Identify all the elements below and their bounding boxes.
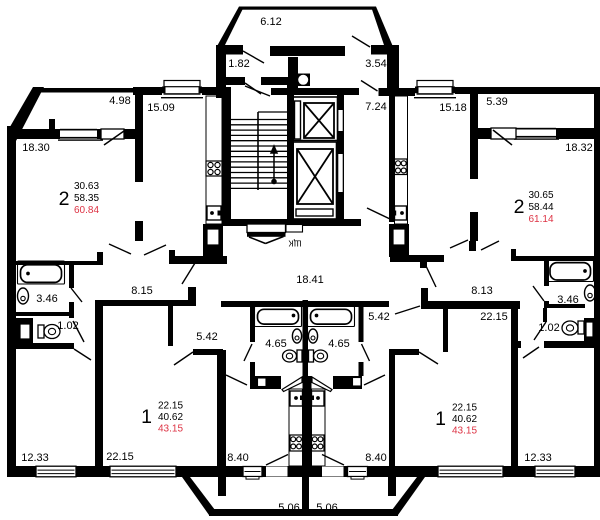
svg-text:8.40: 8.40 (365, 452, 386, 464)
svg-text:5.06: 5.06 (316, 502, 337, 514)
svg-text:3.54: 3.54 (365, 58, 386, 70)
svg-text:60.84: 60.84 (74, 205, 99, 216)
svg-text:40.62: 40.62 (158, 412, 183, 423)
svg-text:7.24: 7.24 (365, 101, 386, 113)
svg-text:43.15: 43.15 (452, 426, 477, 437)
svg-text:22.15: 22.15 (452, 403, 477, 414)
svg-text:1.02: 1.02 (57, 320, 78, 332)
svg-text:43.15: 43.15 (158, 424, 183, 435)
svg-text:22.15: 22.15 (158, 401, 183, 412)
svg-text:22.15: 22.15 (480, 311, 508, 323)
svg-text:61.14: 61.14 (529, 214, 554, 225)
svg-text:12.33: 12.33 (21, 452, 49, 464)
svg-text:5.39: 5.39 (486, 96, 507, 108)
svg-text:4.98: 4.98 (109, 95, 130, 107)
svg-text:1: 1 (435, 408, 446, 430)
svg-text:1: 1 (141, 406, 152, 428)
svg-text:2: 2 (59, 188, 70, 210)
svg-text:12.33: 12.33 (524, 452, 552, 464)
svg-text:30.65: 30.65 (529, 190, 554, 201)
svg-text:6.12: 6.12 (260, 16, 281, 28)
svg-text:5.42: 5.42 (368, 311, 389, 323)
svg-text:18.32: 18.32 (565, 142, 593, 154)
svg-text:1.82: 1.82 (228, 58, 249, 70)
svg-text:8.40: 8.40 (227, 452, 248, 464)
svg-text:3.46: 3.46 (36, 293, 57, 305)
svg-text:4.65: 4.65 (265, 338, 286, 350)
svg-text:58.44: 58.44 (529, 202, 554, 213)
svg-text:18.30: 18.30 (22, 142, 50, 154)
svg-text:3.46: 3.46 (557, 294, 578, 306)
svg-text:30.63: 30.63 (74, 181, 99, 192)
svg-text:4.65: 4.65 (328, 338, 349, 350)
svg-text:8.15: 8.15 (131, 285, 152, 297)
svg-text:18.41: 18.41 (296, 274, 324, 286)
svg-text:8.13: 8.13 (471, 285, 492, 297)
svg-text:15.09: 15.09 (147, 102, 175, 114)
svg-text:58.35: 58.35 (74, 193, 99, 204)
svg-text:15.18: 15.18 (439, 102, 467, 114)
svg-text:40.62: 40.62 (452, 414, 477, 425)
svg-text:5.06: 5.06 (278, 502, 299, 514)
svg-text:ЩК: ЩК (288, 238, 301, 248)
svg-text:5.42: 5.42 (196, 331, 217, 343)
svg-text:22.15: 22.15 (106, 451, 134, 463)
svg-text:1.02: 1.02 (538, 322, 559, 334)
svg-text:2: 2 (514, 196, 525, 218)
